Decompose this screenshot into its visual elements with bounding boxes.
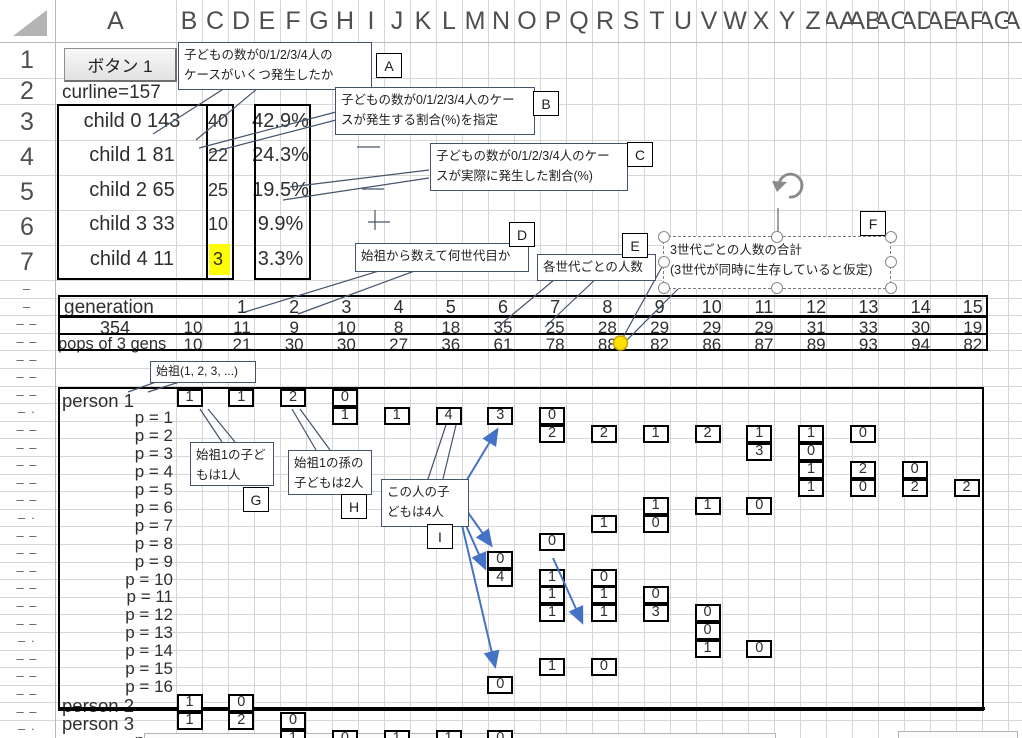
row-header-collapsed[interactable]: – · bbox=[0, 403, 54, 421]
tree-cell[interactable]: 1 bbox=[177, 389, 203, 407]
row-header-collapsed[interactable]: – – bbox=[0, 685, 54, 703]
column-header-V[interactable]: V bbox=[696, 0, 722, 42]
column-header-AC[interactable]: AC bbox=[878, 0, 904, 42]
row-header-2[interactable]: 2 bbox=[0, 78, 54, 104]
row-header-6[interactable]: 6 bbox=[0, 210, 54, 245]
row-header-collapsed[interactable]: – · bbox=[0, 720, 54, 738]
column-header-X[interactable]: X bbox=[748, 0, 774, 42]
tree-cell[interactable]: 1 bbox=[591, 586, 617, 604]
tree-cell[interactable]: 0 bbox=[746, 497, 772, 515]
tree-cell[interactable]: 1 bbox=[591, 604, 617, 622]
row-header-collapsed[interactable]: – – bbox=[0, 438, 54, 456]
column-header-T[interactable]: T bbox=[644, 0, 670, 42]
column-header-J[interactable]: J bbox=[384, 0, 410, 42]
column-header-Y[interactable]: Y bbox=[774, 0, 800, 42]
row-header-collapsed[interactable]: – bbox=[0, 298, 54, 316]
column-header-R[interactable]: R bbox=[592, 0, 618, 42]
tree-cell[interactable]: 1 bbox=[798, 461, 824, 479]
tree-cell[interactable]: 0 bbox=[280, 712, 306, 730]
column-header-AB[interactable]: AB bbox=[852, 0, 878, 42]
selection-handle[interactable] bbox=[771, 231, 783, 243]
column-header-AE[interactable]: AE bbox=[930, 0, 956, 42]
tree-cell[interactable]: 0 bbox=[487, 730, 513, 738]
callout-origin[interactable]: 始祖(1, 2, 3, ...) bbox=[150, 361, 256, 383]
callout-d[interactable]: 始祖から数えて何世代目か bbox=[355, 243, 529, 272]
row-header-7[interactable]: 7 bbox=[0, 245, 54, 280]
tree-cell[interactable]: 0 bbox=[643, 586, 669, 604]
callout-e[interactable]: 各世代ごとの人数 bbox=[537, 254, 656, 281]
row-header-collapsed[interactable]: – – bbox=[0, 562, 54, 580]
column-header-O[interactable]: O bbox=[514, 0, 540, 42]
column-header-AF[interactable]: AF bbox=[956, 0, 982, 42]
column-header-Q[interactable]: Q bbox=[566, 0, 592, 42]
tree-cell[interactable]: 1 bbox=[384, 407, 410, 425]
column-header-M[interactable]: M bbox=[462, 0, 488, 42]
row-header-collapsed[interactable]: – · bbox=[0, 509, 54, 527]
column-header-AD[interactable]: AD bbox=[904, 0, 930, 42]
column-header-AH[interactable]: AH bbox=[1008, 0, 1022, 42]
generation-table-divider bbox=[58, 315, 987, 318]
column-header-L[interactable]: L bbox=[436, 0, 462, 42]
selection-handle[interactable] bbox=[885, 231, 897, 243]
row-header-5[interactable]: 5 bbox=[0, 175, 54, 210]
tree-cell[interactable]: 0 bbox=[487, 676, 513, 694]
tree-cell[interactable]: 3 bbox=[746, 443, 772, 461]
callout-a[interactable]: 子どもの数が0/1/2/3/4人のケースがいくつ発生したか bbox=[178, 42, 372, 90]
row-header-collapsed[interactable]: – – bbox=[0, 650, 54, 668]
generation-table-divider bbox=[58, 333, 987, 335]
column-header-C[interactable]: C bbox=[202, 0, 228, 42]
callout-h-label[interactable]: H bbox=[341, 494, 367, 519]
column-header-F[interactable]: F bbox=[280, 0, 306, 42]
tree-cell[interactable]: 2 bbox=[280, 389, 306, 407]
tree-cell[interactable]: 0 bbox=[850, 425, 876, 443]
callout-a-label[interactable]: A bbox=[376, 53, 402, 78]
clipped-shape[interactable] bbox=[898, 731, 1018, 738]
tree-cell[interactable]: 2 bbox=[539, 425, 565, 443]
callout-g-label[interactable]: G bbox=[243, 487, 269, 512]
tree-cell[interactable]: 0 bbox=[695, 604, 721, 622]
tree-cell[interactable]: 0 bbox=[591, 658, 617, 676]
tree-cell[interactable]: 1 bbox=[695, 640, 721, 658]
callout-i[interactable]: この人の子どもは4人 bbox=[381, 479, 469, 527]
row-header-4[interactable]: 4 bbox=[0, 140, 54, 175]
selection-handle[interactable] bbox=[658, 282, 670, 294]
callout-b-label[interactable]: B bbox=[533, 91, 559, 116]
row-header-collapsed[interactable]: – – bbox=[0, 579, 54, 597]
tree-cell[interactable]: 0 bbox=[798, 443, 824, 461]
tree-cell[interactable]: 0 bbox=[539, 407, 565, 425]
generation-table bbox=[58, 295, 988, 351]
column-header-W[interactable]: W bbox=[722, 0, 748, 42]
tree-cell[interactable]: 0 bbox=[850, 479, 876, 497]
tree-cell[interactable]: 0 bbox=[228, 694, 254, 712]
rotate-handle-icon[interactable] bbox=[772, 174, 802, 235]
selection-handle[interactable] bbox=[885, 256, 897, 268]
selection-handle[interactable] bbox=[771, 282, 783, 294]
callout-g[interactable]: 始祖1の子どもは1人 bbox=[190, 442, 274, 486]
tree-cell[interactable]: 0 bbox=[746, 640, 772, 658]
tree-cell[interactable]: 1 bbox=[695, 497, 721, 515]
callout-c-label[interactable]: C bbox=[627, 142, 653, 167]
row-header-collapsed[interactable]: – – bbox=[0, 597, 54, 615]
selection-handle[interactable] bbox=[658, 256, 670, 268]
row-header-3[interactable]: 3 bbox=[0, 104, 54, 140]
tree-cell[interactable]: 1 bbox=[798, 479, 824, 497]
row-header-collapsed[interactable]: – – bbox=[0, 350, 54, 368]
tree-cell[interactable]: 3 bbox=[643, 604, 669, 622]
tree-cell[interactable]: 2 bbox=[850, 461, 876, 479]
column-header-E[interactable]: E bbox=[254, 0, 280, 42]
tree-cell[interactable]: 1 bbox=[280, 730, 306, 738]
tree-cell[interactable]: 1 bbox=[436, 730, 462, 738]
callout-h[interactable]: 始祖1の孫の子どもは2人 bbox=[288, 450, 372, 495]
child-table-label-column bbox=[57, 104, 208, 280]
tree-cell[interactable]: 0 bbox=[902, 461, 928, 479]
callout-e-label[interactable]: E bbox=[622, 233, 648, 258]
child-table-count-column bbox=[206, 104, 234, 280]
row-header-collapsed[interactable]: – – bbox=[0, 474, 54, 492]
tree-cell[interactable]: 1 bbox=[177, 712, 203, 730]
row-header-1[interactable]: 1 bbox=[0, 42, 54, 78]
callout-b[interactable]: 子どもの数が0/1/2/3/4人のケースが発生する割合(%)を指定 bbox=[335, 87, 535, 135]
tree-cell[interactable]: 1 bbox=[591, 515, 617, 533]
tree-cell[interactable]: 2 bbox=[591, 425, 617, 443]
column-header-G[interactable]: G bbox=[306, 0, 332, 42]
row-header-collapsed[interactable]: – bbox=[0, 280, 54, 298]
header-divider bbox=[0, 42, 1022, 43]
column-header-D[interactable]: D bbox=[228, 0, 254, 42]
tree-cell[interactable]: 0 bbox=[332, 389, 358, 407]
macro-button-1[interactable]: ボタン 1 bbox=[64, 48, 177, 82]
row-header-collapsed[interactable]: – – bbox=[0, 614, 54, 632]
tree-cell[interactable]: 3 bbox=[487, 407, 513, 425]
row-header-collapsed[interactable]: – – bbox=[0, 702, 54, 720]
tree-cell[interactable]: 0 bbox=[332, 730, 358, 738]
tree-cell[interactable]: 1 bbox=[177, 694, 203, 712]
tree-cell[interactable]: 0 bbox=[695, 622, 721, 640]
tree-cell[interactable]: 1 bbox=[539, 569, 565, 587]
tree-cell[interactable]: 1 bbox=[798, 425, 824, 443]
header-divider bbox=[55, 0, 56, 738]
selection-handle[interactable] bbox=[885, 282, 897, 294]
tree-cell[interactable]: 1 bbox=[746, 425, 772, 443]
column-header-K[interactable]: K bbox=[410, 0, 436, 42]
column-header-Z[interactable]: Z bbox=[800, 0, 826, 42]
column-header-B[interactable]: B bbox=[176, 0, 202, 42]
column-header-H[interactable]: H bbox=[332, 0, 358, 42]
tree-cell[interactable]: 4 bbox=[436, 407, 462, 425]
spreadsheet: ABCDEFGHIJKLMNOPQRSTUVWXYZAAABACADAEAFAG… bbox=[0, 0, 1022, 738]
row-header-collapsed[interactable]: – – bbox=[0, 421, 54, 439]
callout-c[interactable]: 子どもの数が0/1/2/3/4人のケースが実際に発生した割合(%) bbox=[430, 143, 628, 191]
row-header-collapsed[interactable]: – – bbox=[0, 526, 54, 544]
tree-cell[interactable]: 1 bbox=[643, 497, 669, 515]
tree-cell[interactable]: 1 bbox=[332, 407, 358, 425]
row-header-collapsed[interactable]: – · bbox=[0, 632, 54, 650]
row-header-collapsed[interactable]: – – bbox=[0, 315, 54, 333]
tree-cell[interactable]: 0 bbox=[591, 569, 617, 587]
row-header-collapsed[interactable]: – – bbox=[0, 491, 54, 509]
row-header-collapsed[interactable]: – – bbox=[0, 368, 54, 386]
column-header-S[interactable]: S bbox=[618, 0, 644, 42]
tree-cell[interactable]: 1 bbox=[539, 658, 565, 676]
tree-cell[interactable]: 2 bbox=[695, 425, 721, 443]
select-all-corner[interactable] bbox=[0, 0, 55, 42]
tree-cell[interactable]: 2 bbox=[902, 479, 928, 497]
column-header-AA[interactable]: AA bbox=[826, 0, 852, 42]
column-header-N[interactable]: N bbox=[488, 0, 514, 42]
child-table-percent-column bbox=[254, 104, 311, 280]
tree-cell[interactable]: 1 bbox=[539, 604, 565, 622]
tree-cell[interactable]: 2 bbox=[954, 479, 980, 497]
tree-cell[interactable]: 2 bbox=[228, 712, 254, 730]
selection-handle[interactable] bbox=[658, 231, 670, 243]
tree-cell[interactable]: 0 bbox=[487, 551, 513, 569]
row-header-collapsed[interactable]: – – bbox=[0, 386, 54, 404]
row-header-collapsed[interactable]: – – bbox=[0, 456, 54, 474]
column-header-A[interactable]: A bbox=[55, 0, 176, 42]
curline-cell[interactable]: curline=157 bbox=[62, 82, 161, 104]
person1-tree-region bbox=[58, 387, 984, 711]
tree-cell[interactable]: 1 bbox=[228, 389, 254, 407]
callout-f-label[interactable]: F bbox=[860, 211, 886, 236]
tree-cell[interactable]: 1 bbox=[643, 425, 669, 443]
row-header-collapsed[interactable]: – – bbox=[0, 333, 54, 351]
tree-cell[interactable]: 4 bbox=[487, 569, 513, 587]
tree-cell[interactable]: 0 bbox=[643, 515, 669, 533]
column-header-AG[interactable]: AG bbox=[982, 0, 1008, 42]
row-header-collapsed[interactable]: – – bbox=[0, 544, 54, 562]
tree-cell[interactable]: 1 bbox=[539, 586, 565, 604]
callout-i-label[interactable]: I bbox=[427, 524, 453, 549]
row-header-collapsed[interactable]: – – bbox=[0, 667, 54, 685]
column-header-U[interactable]: U bbox=[670, 0, 696, 42]
column-header-I[interactable]: I bbox=[358, 0, 384, 42]
tree-cell[interactable]: 1 bbox=[384, 730, 410, 738]
column-header-P[interactable]: P bbox=[540, 0, 566, 42]
callout-d-label[interactable]: D bbox=[509, 222, 535, 247]
tree-cell[interactable]: 0 bbox=[539, 533, 565, 551]
